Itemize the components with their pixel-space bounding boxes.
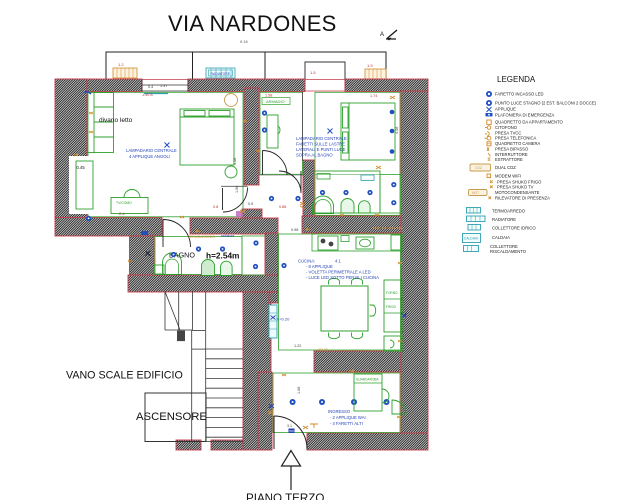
svg-text:0.8: 0.8 — [213, 205, 218, 209]
svg-text:4.08: 4.08 — [233, 158, 237, 165]
svg-text:MODEM WIFI: MODEM WIFI — [495, 174, 521, 179]
svg-text:PUNTO LUCE STAGNO (2 EST. BALC: PUNTO LUCE STAGNO (2 EST. BALCONI 2 DOCC… — [495, 101, 597, 106]
svg-text:radiatore: radiatore — [221, 234, 234, 238]
svg-text:1.08: 1.08 — [297, 387, 301, 394]
svg-text:4.08: 4.08 — [395, 127, 399, 134]
svg-text:FORNO: FORNO — [386, 291, 398, 295]
svg-text:LAMPADARIO CENTRALE: LAMPADARIO CENTRALE — [126, 148, 177, 153]
svg-text:1.74: 1.74 — [370, 94, 377, 98]
svg-text:DUAL CDZ: DUAL CDZ — [495, 165, 516, 170]
svg-text:WC: WC — [289, 429, 295, 433]
svg-text:TERMOARREDO: TERMOARREDO — [492, 209, 526, 214]
svg-text:PRESA BIPASSO: PRESA BIPASSO — [495, 147, 529, 152]
svg-text:1.50 A: 1.50 A — [142, 93, 153, 97]
svg-text:CALDAIA: CALDAIA — [464, 237, 479, 241]
svg-text:2.4: 2.4 — [119, 211, 125, 216]
svg-text:VIA NARDONES: VIA NARDONES — [168, 11, 337, 36]
svg-text:RILEVATORE DI PRESENZA: RILEVATORE DI PRESENZA — [495, 196, 550, 201]
svg-text:- VOLETTA PERIMETRALE A LED: - VOLETTA PERIMETRALE A LED — [306, 270, 371, 275]
svg-text:VANO SCALE EDIFICIO: VANO SCALE EDIFICIO — [66, 370, 183, 382]
svg-text:- 8 APPLIQUE: - 8 APPLIQUE — [306, 264, 333, 269]
svg-text:COLLETTORE IDRICO: COLLETTORE IDRICO — [492, 226, 536, 231]
svg-text:- 4 FARETTI ALTI: - 4 FARETTI ALTI — [330, 421, 363, 426]
svg-text:CITOFONO: CITOFONO — [495, 125, 518, 130]
svg-text:0.4: 0.4 — [148, 85, 153, 89]
svg-text:CDZ: CDZ — [475, 166, 482, 170]
svg-text:1.9: 1.9 — [367, 63, 373, 68]
svg-text:PRESA TELEFONICA: PRESA TELEFONICA — [495, 136, 537, 141]
svg-text:1.5: 1.5 — [310, 70, 316, 75]
svg-text:divano letto: divano letto — [99, 117, 133, 124]
svg-text:h=2.54m: h=2.54m — [206, 251, 239, 261]
svg-text:CUCINA:: CUCINA: — [298, 259, 315, 264]
svg-text:FARETTO INCASSO LED: FARETTO INCASSO LED — [495, 92, 544, 97]
svg-text:0.45: 0.45 — [77, 165, 86, 170]
svg-text:1.22: 1.22 — [294, 344, 301, 348]
svg-text:PIANO TERZO: PIANO TERZO — [246, 492, 324, 500]
svg-text:- LUCE LED SOTTO PENSILI CUC: - LUCE LED SOTTO PENSILI CUCINA — [306, 275, 379, 280]
svg-text:1.08: 1.08 — [235, 186, 239, 193]
svg-text:0.98: 0.98 — [291, 228, 298, 232]
svg-text:PRESA SHUKO TV: PRESA SHUKO TV — [497, 185, 534, 190]
svg-text:ARMADIO: ARMADIO — [266, 99, 285, 104]
svg-text:LEGENDA: LEGENDA — [497, 75, 536, 84]
svg-text:TERMOARREDO: TERMOARREDO — [188, 235, 215, 239]
svg-text:APPLIQUE: APPLIQUE — [495, 107, 516, 112]
svg-text:4.1: 4.1 — [335, 259, 341, 264]
svg-text:A: A — [380, 32, 384, 38]
svg-text:QUADRETTO CAMERA: QUADRETTO CAMERA — [495, 141, 540, 146]
svg-text:MOTOCONDENSANTE: MOTOCONDENSANTE — [495, 190, 540, 195]
svg-text:1.2: 1.2 — [118, 62, 124, 67]
svg-text:ASCENSORE: ASCENSORE — [136, 411, 207, 423]
svg-text:LAMPADARIO CENTRALE: LAMPADARIO CENTRALE — [296, 136, 347, 141]
svg-text:1.37: 1.37 — [160, 84, 167, 88]
svg-text:LATERALI E PUNTI LUCE: LATERALI E PUNTI LUCE — [296, 147, 346, 152]
svg-text:CALDAIA: CALDAIA — [492, 235, 510, 240]
svg-text:SOPRA AL BAGNO: SOPRA AL BAGNO — [296, 153, 333, 158]
svg-text:RISCALDAMENTO: RISCALDAMENTO — [490, 249, 527, 254]
svg-text:h=0.20: h=0.20 — [277, 317, 290, 322]
svg-text:- 2 APPLIQUE WAI: - 2 APPLIQUE WAI — [330, 415, 366, 420]
svg-text:0.5: 0.5 — [248, 202, 253, 206]
svg-text:3.1: 3.1 — [287, 424, 292, 428]
svg-text:ESTRATTORE: ESTRATTORE — [495, 157, 523, 162]
svg-text:AP. 90: AP. 90 — [318, 348, 328, 352]
svg-text:FARETTI SULLE LASTRE: FARETTI SULLE LASTRE — [296, 142, 345, 147]
svg-text:QUADRETTO DA APPARTAMENTO: QUADRETTO DA APPARTAMENTO — [495, 120, 564, 125]
svg-text:GUARDAROBA: GUARDAROBA — [356, 378, 380, 382]
svg-text:RADIATORE: RADIATORE — [211, 72, 231, 76]
svg-text:MOT: MOT — [472, 191, 479, 195]
svg-text:RADIATORE: RADIATORE — [492, 217, 516, 222]
svg-text:1.58: 1.58 — [265, 94, 272, 98]
svg-text:PLAFONIERA DI EMERGENZA: PLAFONIERA DI EMERGENZA — [495, 113, 555, 118]
svg-text:4 APPLIQUE ANGOLI: 4 APPLIQUE ANGOLI — [129, 154, 170, 159]
svg-text:FRIGO: FRIGO — [386, 305, 397, 309]
svg-text:TV/COMO: TV/COMO — [116, 201, 132, 205]
svg-text:0.88: 0.88 — [279, 205, 286, 209]
svg-text:INGRESSO: INGRESSO — [328, 409, 351, 414]
svg-text:9.16: 9.16 — [240, 39, 249, 44]
